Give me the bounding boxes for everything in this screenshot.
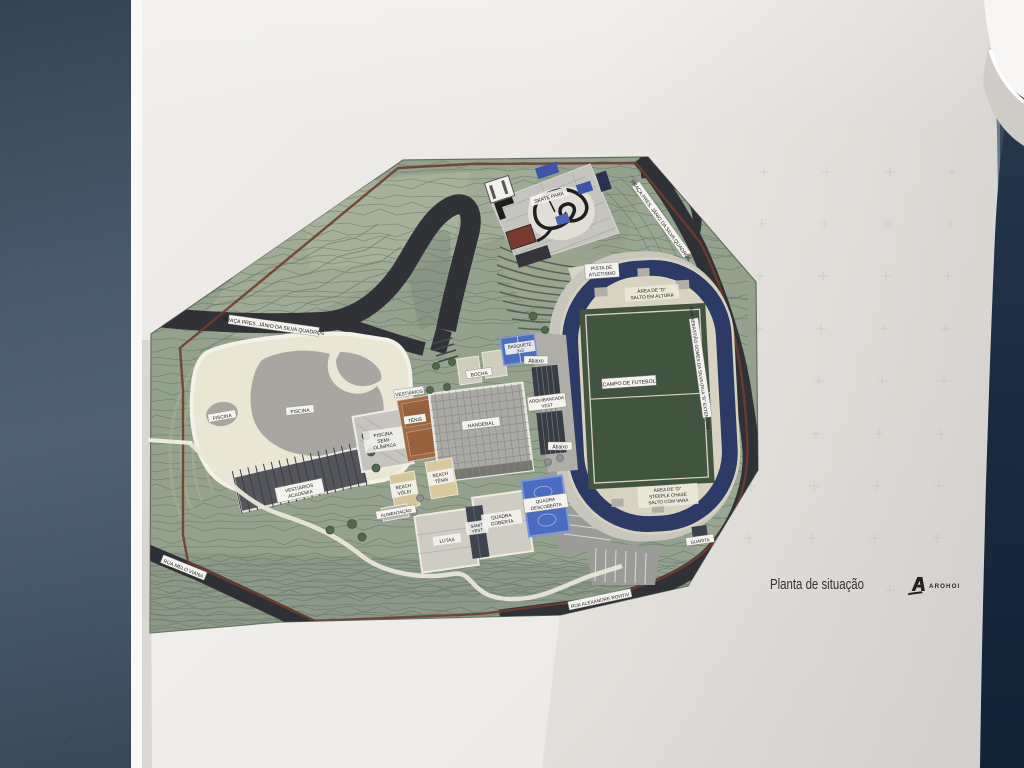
svg-text:Planta de situação: Planta de situação bbox=[770, 577, 864, 593]
svg-text:AROHOI: AROHOI bbox=[929, 583, 960, 590]
svg-text:Abaixo: Abaixo bbox=[528, 359, 544, 365]
svg-text:3x3: 3x3 bbox=[516, 347, 524, 353]
svg-text:Abaixo: Abaixo bbox=[552, 445, 568, 451]
